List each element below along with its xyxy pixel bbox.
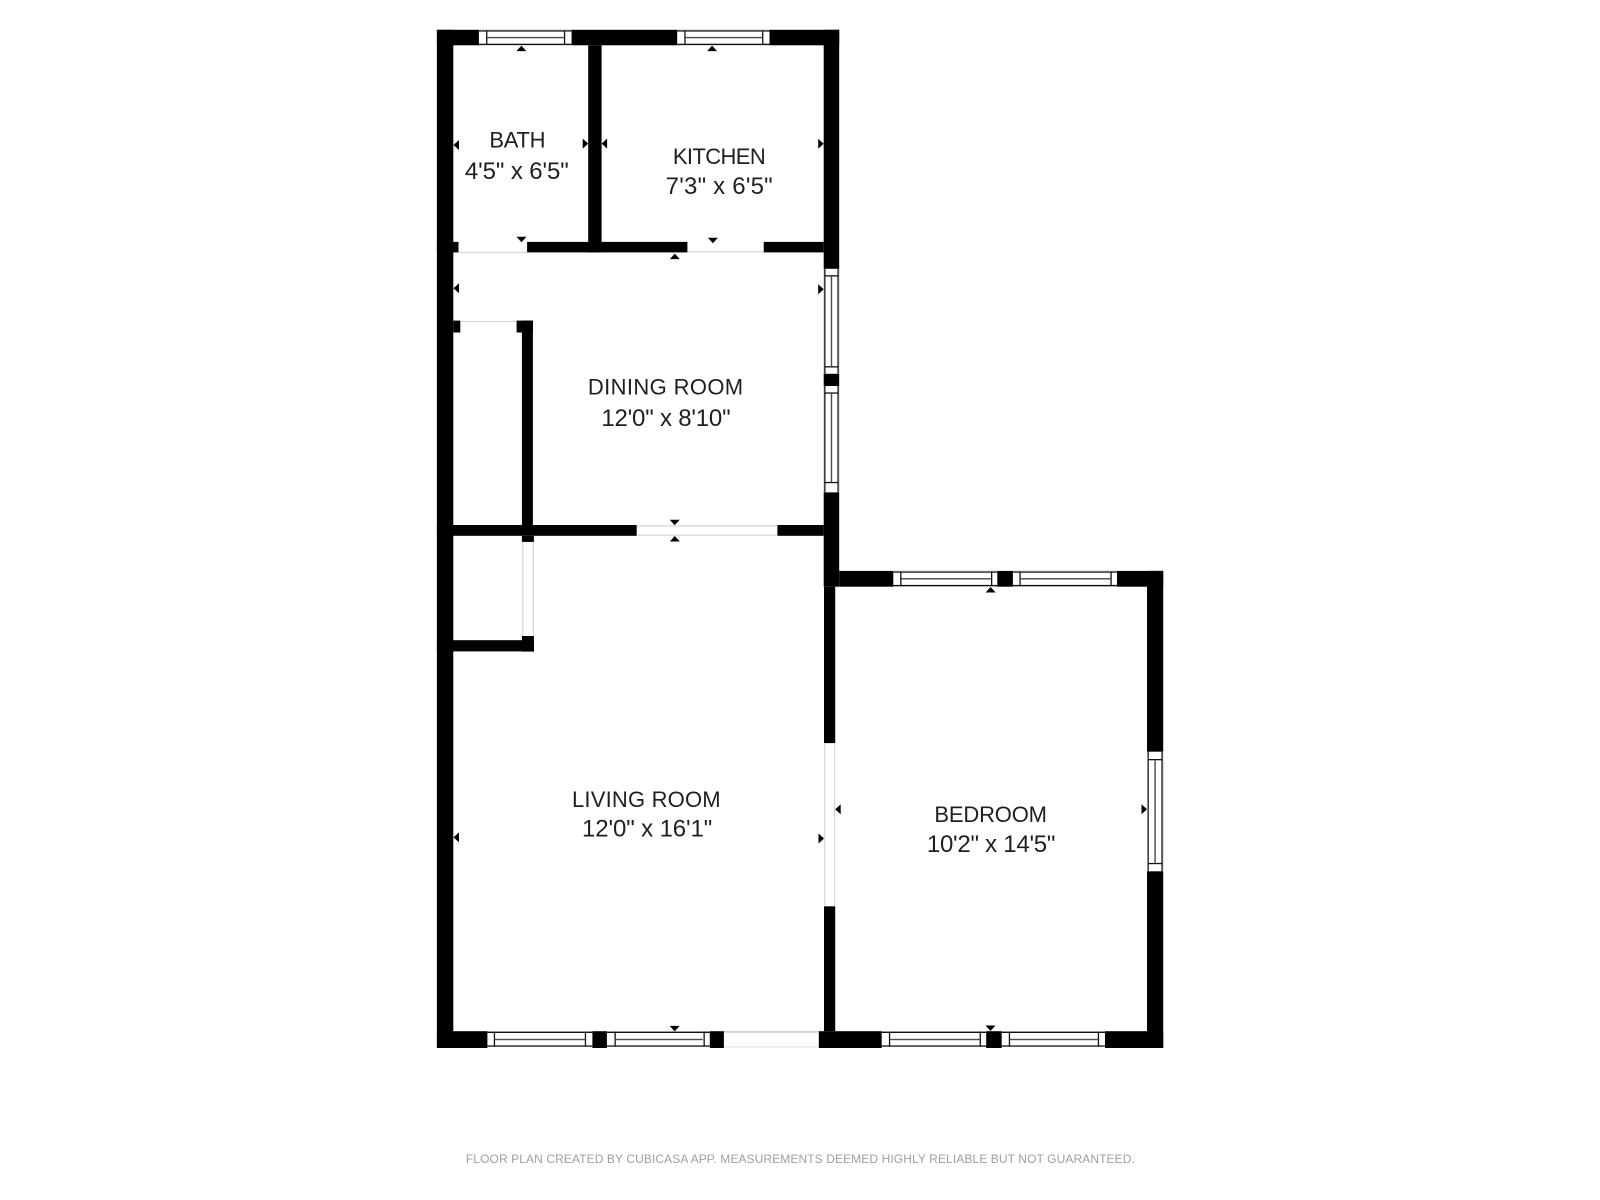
svg-text:LIVING ROOM: LIVING ROOM (572, 787, 721, 812)
svg-text:DINING ROOM: DINING ROOM (588, 375, 744, 400)
svg-text:KITCHEN: KITCHEN (673, 144, 765, 169)
svg-text:7'3" x 6'5": 7'3" x 6'5" (666, 173, 773, 200)
svg-text:12'0" x 16'1": 12'0" x 16'1" (582, 816, 712, 843)
svg-text:4'5" x 6'5": 4'5" x 6'5" (465, 158, 569, 185)
svg-text:12'0" x 8'10": 12'0" x 8'10" (601, 405, 730, 432)
svg-text:BEDROOM: BEDROOM (934, 802, 1046, 827)
svg-text:10'2" x 14'5": 10'2" x 14'5" (927, 831, 1055, 858)
svg-text:BATH: BATH (489, 128, 545, 153)
svg-text:FLOOR PLAN CREATED BY CUBICASA: FLOOR PLAN CREATED BY CUBICASA APP. MEAS… (466, 1152, 1135, 1166)
